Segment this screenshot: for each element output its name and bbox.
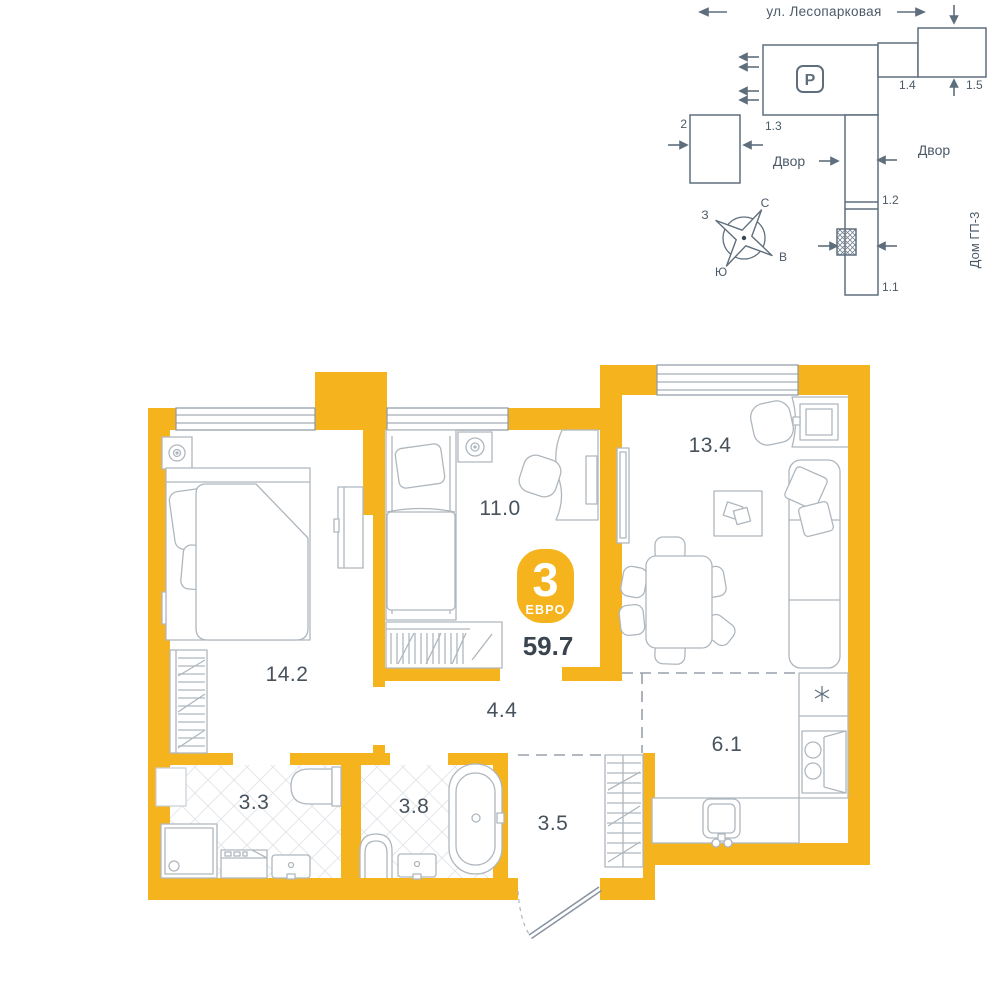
wardrobe — [334, 487, 363, 568]
parking-icon: P — [797, 66, 823, 92]
single-bed — [386, 430, 456, 620]
apartment-type-badge: 3 ЕВРО 59.7 — [517, 549, 574, 661]
room-area-bedroom-1: 14.2 — [266, 663, 309, 686]
compass-north: С — [761, 196, 770, 210]
ceiling-speaker-icon — [162, 437, 192, 469]
compass-west: З — [701, 208, 708, 222]
window-bedroom-1 — [176, 408, 315, 430]
bathtub — [449, 764, 504, 874]
washing-machine — [221, 850, 267, 878]
hall-wardrobe-shelves — [605, 755, 643, 867]
sink — [272, 855, 310, 879]
building-1-4 — [878, 43, 918, 77]
neighbor-house-label: Дом ГП-3 — [967, 212, 982, 269]
building-1-5-label: 1.5 — [966, 78, 983, 92]
yard-right-label: Двор — [918, 142, 951, 158]
coffee-table — [714, 491, 762, 536]
window-bedroom-2 — [387, 408, 508, 430]
room-area-shower-room: 3.3 — [239, 791, 270, 814]
tv-panel — [617, 448, 629, 543]
building-1-3-label: 1.3 — [765, 119, 782, 133]
sofa — [784, 460, 840, 668]
workstation-desk — [792, 397, 848, 447]
duct-niche — [156, 768, 186, 806]
building-1-2-label: 1.2 — [882, 193, 899, 207]
floorplan-page: P С З В Ю ул. Лесо — [0, 0, 1000, 1000]
dining-set — [618, 537, 738, 665]
windows — [176, 365, 798, 430]
building-1-1-label: 1.1 — [882, 280, 899, 294]
door-swing-arc — [518, 891, 529, 934]
window-living-room — [657, 365, 798, 395]
compass-east: В — [779, 250, 787, 264]
apartment-plan: 14.2 11.0 13.4 4.4 6.1 3.3 3.8 3.5 3 ЕВР… — [148, 365, 870, 939]
building-2-label: 2 — [680, 117, 687, 131]
closet-shelves — [170, 650, 207, 753]
room-area-bedroom-2: 11.0 — [479, 497, 520, 520]
desk — [556, 430, 598, 520]
total-area-value: 59.7 — [523, 631, 574, 661]
building-2 — [690, 115, 740, 183]
site-plan: P С З В Ю ул. Лесо — [668, 4, 986, 295]
room-area-corridor: 4.4 — [487, 699, 518, 722]
double-bed — [166, 468, 310, 640]
stove — [802, 731, 846, 793]
sink — [398, 854, 436, 879]
ceiling-speaker-icon — [458, 432, 492, 462]
current-location-marker — [837, 229, 856, 255]
building-1-4-label: 1.4 — [899, 78, 916, 92]
room-area-bathroom: 3.8 — [399, 795, 430, 818]
workstation-chair — [748, 398, 796, 447]
room-area-living-room: 13.4 — [689, 434, 732, 457]
street-label: ул. Лесопарковая — [766, 4, 881, 19]
badge-layout-type: ЕВРО — [525, 603, 565, 617]
yard-left-label: Двор — [773, 153, 806, 169]
dresser — [386, 622, 502, 668]
toilet — [360, 834, 392, 878]
dining-table — [646, 556, 712, 648]
compass-south: Ю — [715, 265, 727, 279]
living-room-furniture — [617, 397, 848, 668]
room-area-hallway: 3.5 — [538, 812, 569, 835]
room-area-kitchen: 6.1 — [712, 733, 743, 756]
parking-letter: P — [805, 72, 816, 89]
bedroom-1-furniture — [162, 437, 363, 753]
building-tower — [845, 115, 878, 295]
zone-boundaries — [518, 673, 799, 755]
building-1-5 — [918, 28, 986, 77]
compass-rose: С З В Ю — [701, 196, 787, 279]
shower-cabin — [161, 824, 217, 878]
kitchen-furniture — [652, 673, 848, 847]
toilet — [291, 767, 341, 806]
badge-rooms-count: 3 — [532, 553, 558, 606]
floorplan-canvas: P С З В Ю ул. Лесо — [0, 0, 1000, 1000]
entrance-door — [518, 887, 602, 939]
